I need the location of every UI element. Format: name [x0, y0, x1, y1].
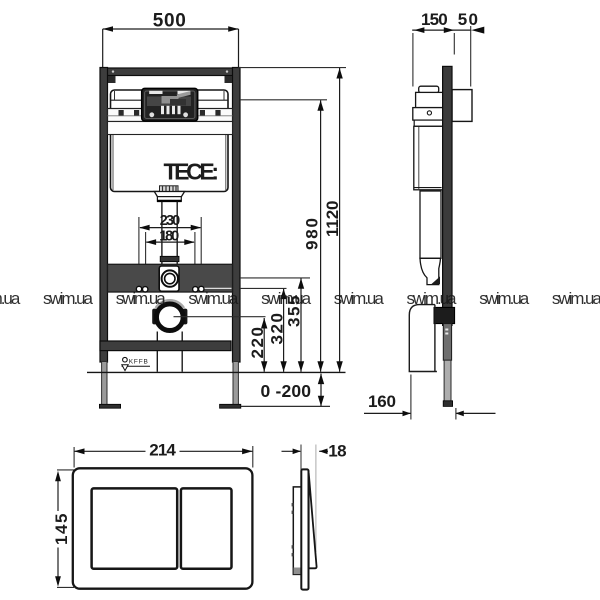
svg-text:swim.ua: swim.ua — [407, 289, 458, 308]
svg-text:swim.ua: swim.ua — [261, 289, 312, 308]
svg-text:980: 980 — [303, 218, 322, 250]
svg-text:150: 150 — [421, 10, 448, 29]
svg-text:18: 18 — [328, 441, 346, 460]
svg-text:160: 160 — [368, 392, 396, 411]
svg-text:1120: 1120 — [323, 201, 342, 238]
svg-text:swim.ua: swim.ua — [479, 289, 530, 308]
svg-text:180: 180 — [159, 229, 179, 245]
svg-text:0 -200: 0 -200 — [261, 381, 312, 401]
svg-text:swim.ua: swim.ua — [188, 289, 239, 308]
svg-text:500: 500 — [153, 11, 186, 32]
svg-text:50: 50 — [458, 10, 478, 29]
svg-text:swim.ua: swim.ua — [0, 289, 21, 308]
svg-text:145: 145 — [52, 514, 71, 546]
svg-text:TECE:: TECE: — [164, 158, 220, 184]
svg-text:220: 220 — [248, 327, 267, 359]
svg-text:230: 230 — [160, 213, 180, 229]
svg-text:214: 214 — [149, 440, 176, 459]
svg-text:KFFB: KFFB — [129, 359, 148, 366]
svg-text:swim.ua: swim.ua — [334, 289, 385, 308]
svg-text:swim.ua: swim.ua — [116, 289, 167, 308]
svg-text:swim.ua: swim.ua — [43, 289, 94, 308]
svg-text:swim.ua: swim.ua — [552, 289, 600, 308]
